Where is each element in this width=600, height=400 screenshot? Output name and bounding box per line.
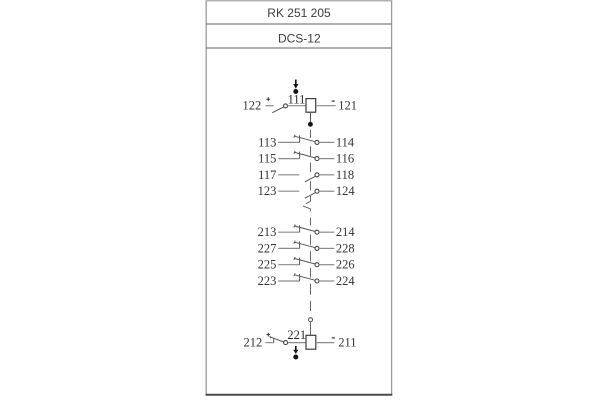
svg-text:212: 212 [244, 336, 263, 350]
svg-text:114: 114 [336, 135, 355, 149]
svg-text:223: 223 [258, 274, 277, 288]
svg-text:213: 213 [258, 225, 277, 239]
svg-text:115: 115 [258, 152, 276, 166]
svg-text:123: 123 [258, 184, 277, 198]
svg-text:116: 116 [336, 152, 354, 166]
svg-text:224: 224 [336, 274, 356, 288]
svg-text:226: 226 [336, 258, 355, 272]
svg-text:113: 113 [258, 135, 276, 149]
svg-text:225: 225 [258, 258, 277, 272]
svg-text:228: 228 [336, 241, 355, 255]
svg-text:DCS-12: DCS-12 [278, 32, 321, 46]
svg-text:211: 211 [338, 336, 356, 350]
svg-text:227: 227 [258, 241, 277, 255]
svg-text:117: 117 [258, 168, 276, 182]
svg-text:111: 111 [288, 92, 306, 106]
svg-text:118: 118 [336, 168, 354, 182]
svg-text:122: 122 [243, 99, 262, 113]
svg-text:RK 251 205: RK 251 205 [267, 6, 331, 20]
svg-text:121: 121 [338, 99, 357, 113]
svg-text:124: 124 [336, 184, 356, 198]
svg-text:221: 221 [287, 328, 306, 342]
svg-text:214: 214 [336, 225, 356, 239]
